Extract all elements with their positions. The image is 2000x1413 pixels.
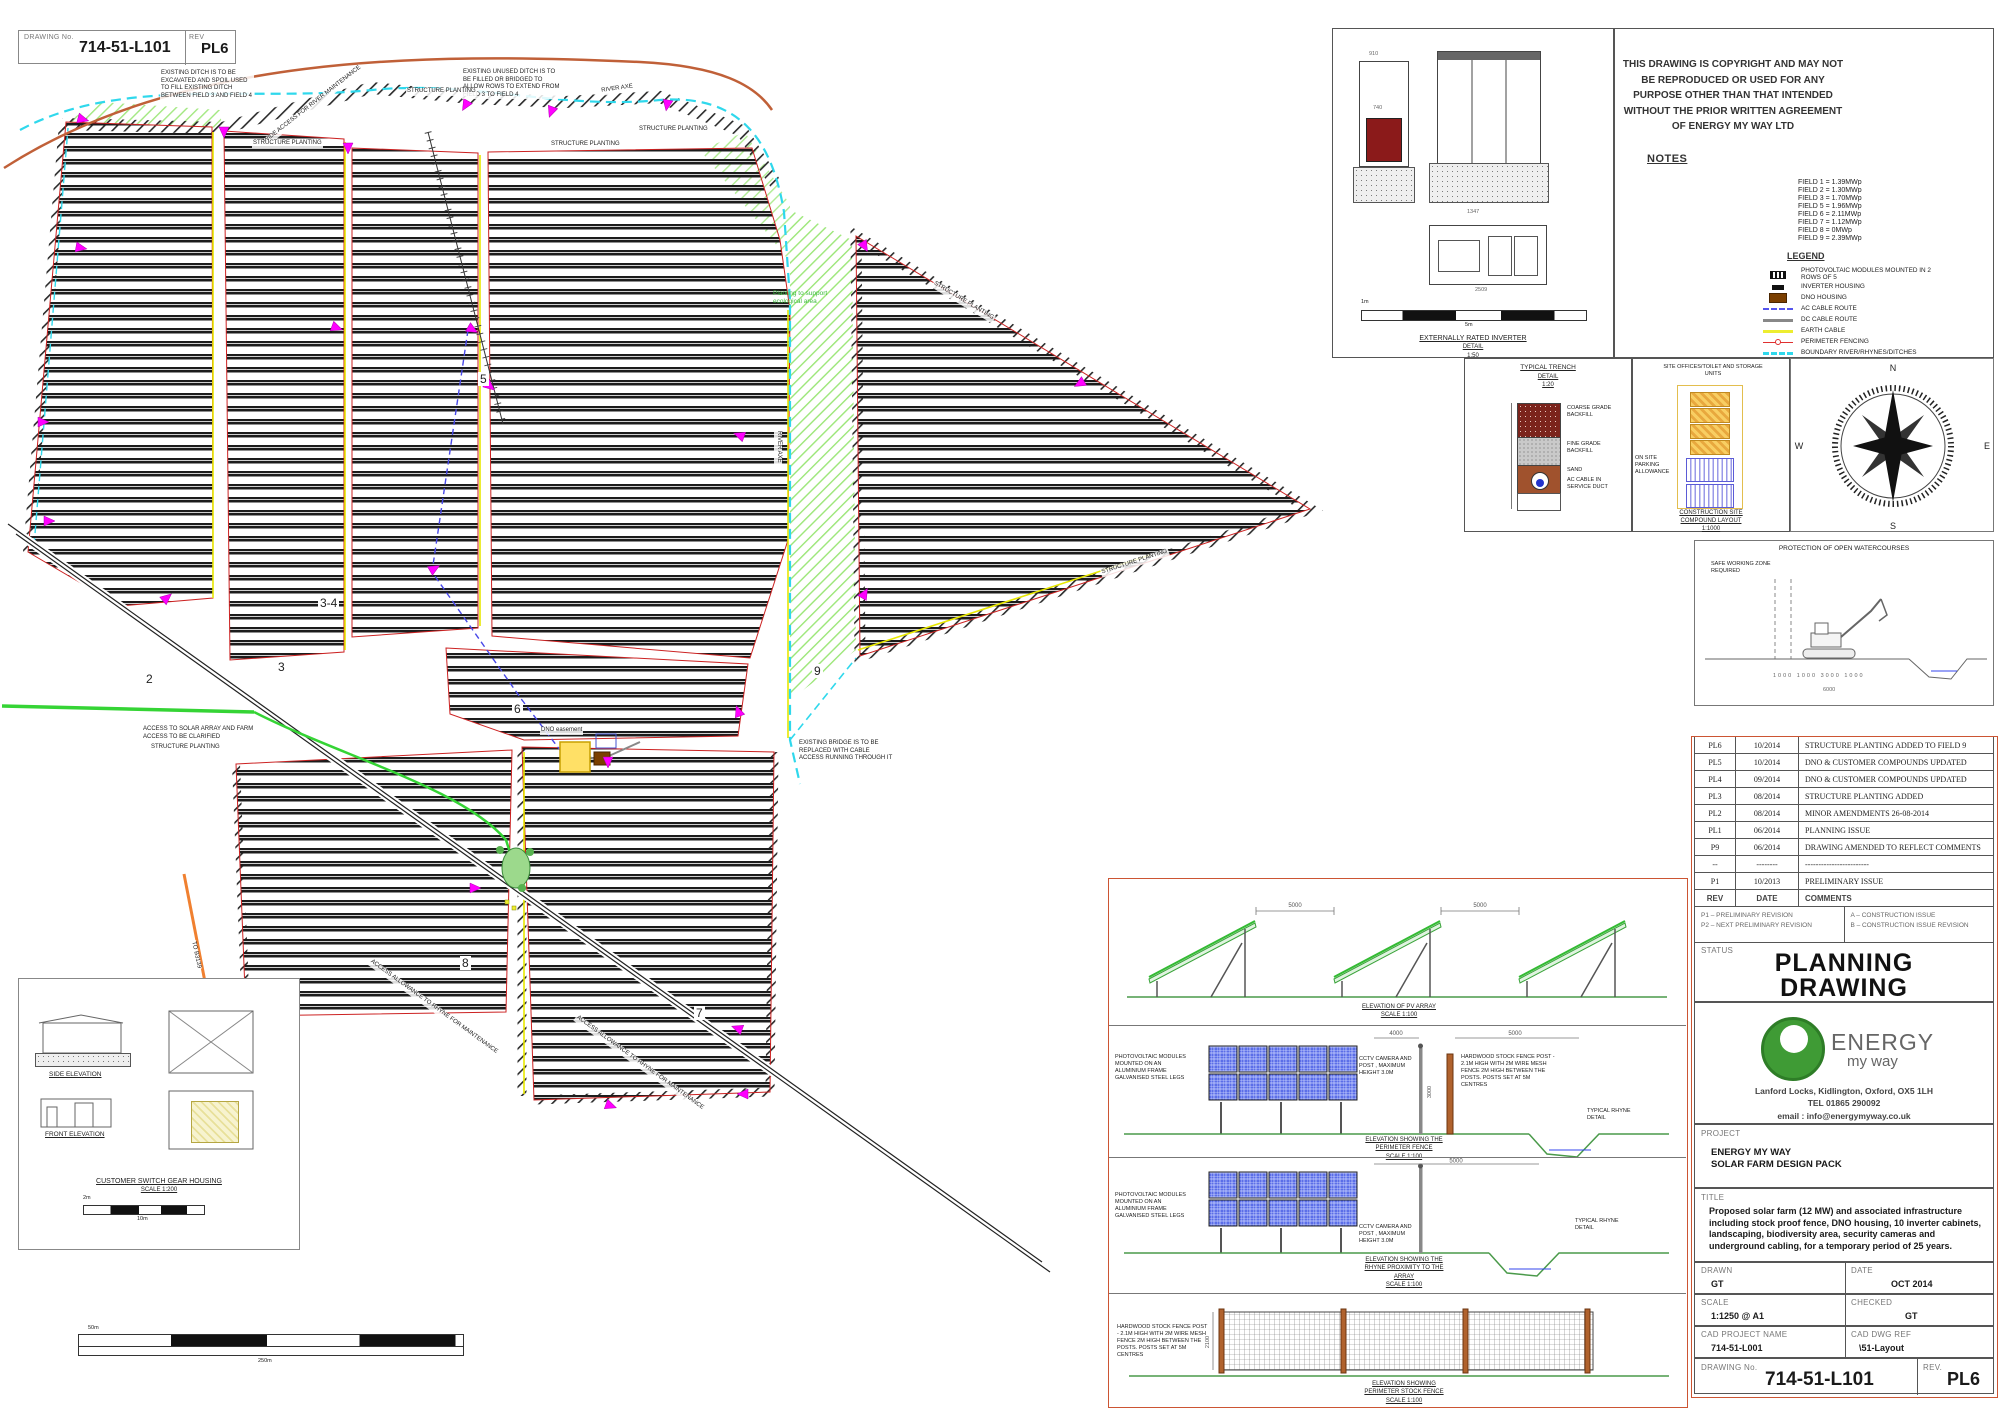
rev-key-p2: P2 – NEXT PRELIMINARY REVISION xyxy=(1701,921,1838,931)
annotation-structure-planting: STRUCTURE PLANTING xyxy=(406,88,477,96)
cad-project-value: 714-51-L001 xyxy=(1711,1343,1763,1353)
rev-key-a: A – CONSTRUCTION ISSUE xyxy=(1851,911,1988,921)
foundation-base xyxy=(35,1053,131,1067)
notes-panel: THIS DRAWING IS COPYRIGHT AND MAY NOT BE… xyxy=(1614,28,1994,358)
trench-detail-panel: TYPICAL TRENCH DETAIL 1:20 COARSE GRADE … xyxy=(1464,358,1632,532)
field-output: FIELD 9 = 2.39MWp xyxy=(1798,235,1862,243)
foundation-base xyxy=(1429,163,1549,203)
annotation-structure-planting: STRUCTURE PLANTING xyxy=(638,126,709,134)
field-number: 9 xyxy=(812,664,823,678)
scale-checked-row: SCALE 1:1250 @ A1 CHECKED GT xyxy=(1694,1294,1994,1326)
compound-boundary xyxy=(1677,385,1743,509)
field-output-list: FIELD 1 = 1.39MWpFIELD 2 = 1.30MWpFIELD … xyxy=(1798,179,1862,243)
brand-sub: my way xyxy=(1847,1053,1898,1070)
company-block: ENERGY my way Lanford Locks, Kidlington,… xyxy=(1694,1002,1994,1124)
excavator-detail xyxy=(1695,571,1995,681)
inverter-cabinet-elevation xyxy=(1437,51,1541,165)
annotation-access-clarified: ACCESS TO SOLAR ARRAY AND FARM ACCESS TO… xyxy=(142,726,256,741)
scale-label-250m: 250m xyxy=(258,1358,272,1365)
revision-key-row: P1 – PRELIMINARY REVISION P2 – NEXT PREL… xyxy=(1695,906,1993,943)
construction-compound-panel: SITE OFFICES/TOILET AND STORAGE UNITS ON… xyxy=(1632,358,1790,532)
scale-label-10m: 10m xyxy=(137,1216,148,1223)
cad-ref-value: \51-Layout xyxy=(1859,1343,1904,1353)
drawn-date-row: DRAWN GT DATE OCT 2014 xyxy=(1694,1262,1994,1294)
revision-row: PL308/2014STRUCTURE PLANTING ADDED xyxy=(1695,787,1993,804)
stock-fence-elevation: 2100 HARDWOOD STOCK FENCE POST - 2.1M HI… xyxy=(1109,1293,1686,1407)
rhyne-label: TYPICAL RHYNE DETAIL xyxy=(1587,1108,1637,1122)
ac-cable-icon xyxy=(1761,304,1795,314)
rev-value: PL6 xyxy=(1947,1369,1980,1390)
switchgear-scale-bar xyxy=(83,1205,205,1215)
stock-fence-post-label: HARDWOOD STOCK FENCE POST - 2.1M HIGH WI… xyxy=(1117,1324,1209,1358)
switchgear-panel: SIDE ELEVATION FRONT ELEVATION CUSTOMER … xyxy=(18,978,300,1250)
top-title-block: DRAWING No. 714-51-L101 REV PL6 xyxy=(18,30,236,64)
title-text: Proposed solar farm (12 MW) and associat… xyxy=(1709,1206,1985,1253)
company-contact: Lanford Locks, Kidlington, Oxford, OX5 1… xyxy=(1695,1085,1993,1122)
solar-field-6 xyxy=(446,648,748,740)
rev-label: REV. xyxy=(1923,1363,1942,1372)
dimension: 5000 xyxy=(1288,903,1302,909)
dimension: 1347 xyxy=(1467,209,1479,216)
date-label: DATE xyxy=(1851,1266,1873,1275)
field-number: 3-4 xyxy=(318,596,339,610)
notes-heading: NOTES xyxy=(1647,153,1687,165)
storage-unit xyxy=(1690,440,1730,455)
company-tel: TEL 01865 290092 xyxy=(1695,1097,1993,1109)
housing-plan-view xyxy=(1429,225,1547,285)
compass-north: N xyxy=(1890,363,1897,373)
inverter-housing-icon xyxy=(1761,282,1795,292)
dimension: 5000 xyxy=(1449,1159,1463,1165)
copyright-notice: THIS DRAWING IS COPYRIGHT AND MAY NOT BE… xyxy=(1617,57,1849,135)
cad-ref-label: CAD DWG REF xyxy=(1851,1330,1911,1339)
rev-key-p1: P1 – PRELIMINARY REVISION xyxy=(1701,911,1838,921)
scale-label-2m: 2m xyxy=(83,1195,91,1202)
ac-cable xyxy=(1536,479,1544,487)
annotation-ditch-filled: EXISTING UNUSED DITCH IS TO BE FILLED OR… xyxy=(462,69,564,99)
perimeter-fence-elevation: 4000 5000 3000 PHOTOVOLTAIC MODULES MOUN… xyxy=(1109,1025,1686,1158)
cctv-label: CCTV CAMERA AND POST , MAXIMUM HEIGHT 3.… xyxy=(1359,1056,1415,1077)
dimension: 4000 xyxy=(1389,1031,1403,1037)
drawn-value: GT xyxy=(1711,1279,1724,1289)
switchgear-caption: CUSTOMER SWITCH GEAR HOUSING SCALE 1:200 xyxy=(19,1177,299,1195)
stock-fence-caption: ELEVATION SHOWING PERIMETER STOCK FENCE … xyxy=(1339,1380,1469,1405)
compass-rose: N E S W xyxy=(1791,359,1995,533)
sand-label: SAND xyxy=(1567,467,1627,474)
cad-project-label: CAD PROJECT NAME xyxy=(1701,1330,1787,1339)
field-output: FIELD 3 = 1.70MWp xyxy=(1798,195,1862,203)
parking-label: ON SITE PARKING ALLOWANCE xyxy=(1635,455,1675,476)
dimension: 740 xyxy=(1373,105,1382,112)
planning-drawing-sheet: 2 3 3-4 5 6 7 8 9 EXISTING DITCH IS TO B… xyxy=(0,0,2000,1413)
service-duct xyxy=(1531,472,1549,490)
site-offices-label: SITE OFFICES/TOILET AND STORAGE UNITS xyxy=(1663,364,1763,378)
annotation-structure-planting: STRUCTURE PLANTING xyxy=(150,744,221,752)
legend-heading: LEGEND xyxy=(1787,251,1825,261)
compound-caption: CONSTRUCTION SITE COMPOUND LAYOUT 1:1000 xyxy=(1633,509,1789,533)
scale-label: SCALE xyxy=(1701,1298,1729,1307)
parking-area xyxy=(1686,458,1734,482)
fence-post-label: HARDWOOD STOCK FENCE POST - 2.1M HIGH WI… xyxy=(1461,1054,1557,1088)
dimension: 5000 xyxy=(1508,1031,1522,1037)
plan-room xyxy=(1514,236,1538,276)
legend-item-perimeter-fencing: PERIMETER FENCING xyxy=(1761,337,1991,347)
solar-field-3 xyxy=(224,131,344,660)
revision-table: PL610/2014STRUCTURE PLANTING ADDED TO FI… xyxy=(1694,736,1994,944)
scale-bar-lower xyxy=(78,1346,464,1356)
inverter-detail-panel: 910 740 1347 2509 1m 5m EXTERNALLY RATED… xyxy=(1332,28,1614,358)
logo-inner-circle xyxy=(1780,1025,1808,1053)
status-block: STATUS PLANNINGDRAWING xyxy=(1694,942,1994,1002)
front-elevation-caption: FRONT ELEVATION xyxy=(45,1131,105,1138)
annotation-river-axe: RIVER AXE xyxy=(775,430,783,464)
cabinet-top-bar xyxy=(1438,52,1540,60)
rev-value: PL6 xyxy=(201,40,229,57)
pv-modules-icon xyxy=(1761,270,1795,280)
modules-label: PHOTOVOLTAIC MODULES MOUNTED ON AN ALUMI… xyxy=(1115,1054,1189,1082)
legend-item-ac-cable: AC CABLE ROUTE xyxy=(1761,304,1991,314)
sand-layer xyxy=(1517,465,1561,495)
total-dimension: 6000 xyxy=(1823,687,1835,694)
revision-row: PL208/2014MINOR AMENDMENTS 26-08-2014 xyxy=(1695,804,1993,821)
project-label: PROJECT xyxy=(1701,1129,1740,1138)
watercourse-heading: PROTECTION OF OPEN WATERCOURSES xyxy=(1695,545,1993,554)
dimension: 5000 xyxy=(1473,903,1487,909)
drawing-no-value: 714-51-L101 xyxy=(79,39,171,57)
drawing-no-label: DRAWING No. xyxy=(24,34,74,41)
legend-item-pv-modules: PHOTOVOLTAIC MODULES MOUNTED IN 2 ROWS O… xyxy=(1761,268,1991,281)
compass-panel: N E S W xyxy=(1790,358,1994,532)
storage-unit xyxy=(1690,424,1730,439)
annotation-eco-area: Planting to support ecological area xyxy=(772,290,838,306)
divider xyxy=(1917,1359,1918,1395)
revision-row: ---------------------------------- xyxy=(1695,855,1993,872)
side-elevation-caption: SIDE ELEVATION xyxy=(49,1071,102,1078)
drawing-no-row: DRAWING No. 714-51-L101 REV. PL6 xyxy=(1694,1358,1994,1394)
field-number: 7 xyxy=(694,1006,705,1020)
annotation-structure-planting: STRUCTURE PLANTING xyxy=(550,141,621,149)
earth-cable-icon xyxy=(1761,326,1795,336)
scale-label-50m: 50m xyxy=(88,1325,99,1332)
title-block: TITLE Proposed solar farm (12 MW) and as… xyxy=(1694,1188,1994,1262)
checked-label: CHECKED xyxy=(1851,1298,1892,1307)
divider xyxy=(1845,1263,1846,1295)
rev-key-b: B – CONSTRUCTION ISSUE REVISION xyxy=(1851,921,1988,931)
field-output: FIELD 6 = 2.11MWp xyxy=(1798,211,1862,219)
revision-row: PL610/2014STRUCTURE PLANTING ADDED TO FI… xyxy=(1695,736,1993,753)
foundation-base xyxy=(1353,167,1415,203)
revision-row: PL510/2014DNO & CUSTOMER COMPOUNDS UPDAT… xyxy=(1695,753,1993,770)
dc-cable-icon xyxy=(1761,315,1795,325)
date-value: OCT 2014 xyxy=(1891,1279,1933,1289)
zone-dimensions: 1000 1000 3000 1000 xyxy=(1773,673,1865,680)
rhyne-proximity-elevation: 5000 PHOTOVOLTAIC MODULES MOUNTED ON AN … xyxy=(1109,1157,1686,1294)
annotation-ditch-excavated: EXISTING DITCH IS TO BE EXCAVATED AND SP… xyxy=(160,70,254,100)
project-line2: SOLAR FARM DESIGN PACK xyxy=(1711,1159,1842,1170)
pv-array-caption: ELEVATION OF PV ARRAY SCALE 1:100 xyxy=(1309,1003,1489,1020)
perimeter-fence-icon xyxy=(1761,337,1795,347)
dimension-line xyxy=(1511,403,1512,509)
field-output: FIELD 7 = 1.12MWp xyxy=(1798,219,1862,227)
inverter-detail-caption: EXTERNALLY RATED INVERTER DETAIL 1:50 xyxy=(1333,334,1613,360)
dno-housing-icon xyxy=(1761,293,1795,303)
field-output: FIELD 2 = 1.30MWp xyxy=(1798,187,1862,195)
plan-room xyxy=(1488,236,1512,276)
trench-bottom xyxy=(1517,493,1561,511)
field-number: 6 xyxy=(512,702,523,716)
scale-label-1m: 1m xyxy=(1361,299,1369,306)
coarse-backfill-label: COARSE GRADE BACKFILL xyxy=(1567,405,1627,419)
rhyne-label: TYPICAL RHYNE DETAIL xyxy=(1575,1218,1625,1232)
fine-backfill-layer xyxy=(1517,437,1561,467)
elevation-details-block: 5000 5000 ELEVATION OF PV ARRAY SCALE 1:… xyxy=(1108,878,1688,1408)
legend-item-dc-cable: DC CABLE ROUTE xyxy=(1761,315,1991,325)
storage-unit xyxy=(1690,392,1730,407)
drawing-no-value: 714-51-L101 xyxy=(1765,1369,1874,1391)
legend-item-earth-cable: EARTH CABLE xyxy=(1761,326,1991,336)
watercourse-protection-panel: PROTECTION OF OPEN WATERCOURSES SAFE WOR… xyxy=(1694,540,1994,706)
scale-label-5m: 5m xyxy=(1465,322,1473,329)
revision-row: PL409/2014DNO & CUSTOMER COMPOUNDS UPDAT… xyxy=(1695,770,1993,787)
legend-item-boundary: BOUNDARY RIVER/RHYNES/DITCHES xyxy=(1761,348,1991,358)
solar-field-9 xyxy=(856,236,1310,656)
compass-east: E xyxy=(1984,441,1990,451)
drawing-no-label: DRAWING No. xyxy=(1701,1363,1757,1372)
pv-array-elevation: 5000 5000 ELEVATION OF PV ARRAY SCALE 1:… xyxy=(1109,879,1686,1025)
drawn-label: DRAWN xyxy=(1701,1266,1732,1275)
dno-door xyxy=(1366,118,1402,162)
brand-name: ENERGY xyxy=(1831,1029,1934,1056)
revision-row: P110/2013PRELIMINARY ISSUE xyxy=(1695,872,1993,889)
solar-field-5 xyxy=(488,148,790,658)
compass-west: W xyxy=(1795,441,1804,451)
status-value: PLANNINGDRAWING xyxy=(1695,951,1993,1001)
boundary-icon xyxy=(1761,348,1795,358)
field-number: 3 xyxy=(276,660,287,674)
plan-equipment-area xyxy=(191,1101,239,1143)
checked-value: GT xyxy=(1905,1311,1918,1321)
storage-unit xyxy=(1690,408,1730,423)
title-label: TITLE xyxy=(1701,1193,1724,1202)
revision-row: PL106/2014PLANNING ISSUE xyxy=(1695,821,1993,838)
plan-room xyxy=(1438,240,1480,272)
annotation-bridge: EXISTING BRIDGE IS TO BE REPLACED WITH C… xyxy=(798,740,896,763)
detail-scale-bar xyxy=(1361,310,1587,321)
fine-backfill-label: FINE GRADE BACKFILL xyxy=(1567,441,1627,455)
parking-area xyxy=(1686,484,1734,508)
revision-header-row: REVDATECOMMENTS xyxy=(1695,889,1993,906)
field-output: FIELD 8 = 0MWp xyxy=(1798,227,1862,235)
coarse-backfill-layer xyxy=(1517,403,1561,439)
compass-south: S xyxy=(1890,521,1896,531)
legend-item-inverter-housing: INVERTER HOUSING xyxy=(1761,282,1991,292)
field-output: FIELD 5 = 1.96MWp xyxy=(1798,203,1862,211)
trench-detail-title: TYPICAL TRENCH DETAIL 1:20 xyxy=(1465,364,1631,389)
field-number: 8 xyxy=(460,956,471,970)
modules-label: PHOTOVOLTAIC MODULES MOUNTED ON AN ALUMI… xyxy=(1115,1192,1189,1220)
cad-row: CAD PROJECT NAME 714-51-L001 CAD DWG REF… xyxy=(1694,1326,1994,1358)
dno-housing-elevation xyxy=(1359,61,1409,167)
project-line1: ENERGY MY WAY xyxy=(1711,1147,1791,1158)
scale-value: 1:1250 @ A1 xyxy=(1711,1311,1764,1321)
divider xyxy=(1845,1327,1846,1359)
field-output: FIELD 1 = 1.39MWp xyxy=(1798,179,1862,187)
annotation-structure-planting: STRUCTURE PLANTING xyxy=(252,140,323,148)
bee-hive-marker xyxy=(505,900,509,904)
dimension: 910 xyxy=(1369,51,1378,58)
rhyne-proximity-caption: ELEVATION SHOWING THE RHYNE PROXIMITY TO… xyxy=(1344,1256,1464,1290)
dimension: 2509 xyxy=(1475,287,1487,294)
ac-cable-duct-label: AC CABLE IN SERVICE DUCT xyxy=(1567,477,1617,491)
divider xyxy=(1845,1295,1846,1327)
bee-hive-marker xyxy=(512,906,516,910)
project-block: PROJECT ENERGY MY WAY SOLAR FARM DESIGN … xyxy=(1694,1124,1994,1188)
company-address: Lanford Locks, Kidlington, Oxford, OX5 1… xyxy=(1695,1085,1993,1097)
divider xyxy=(185,31,186,65)
annotation-dno-easement: DNO easement xyxy=(540,727,583,735)
revision-row: P906/2014DRAWING AMENDED TO REFLECT COMM… xyxy=(1695,838,1993,855)
field-number: 2 xyxy=(144,672,155,686)
energy-my-way-logo xyxy=(1761,1017,1825,1081)
dimension: 3000 xyxy=(1427,1086,1433,1098)
legend-item-dno-housing: DNO HOUSING xyxy=(1761,293,1991,303)
cctv-label: CCTV CAMERA AND POST , MAXIMUM HEIGHT 3.… xyxy=(1359,1224,1415,1245)
company-email: email : info@energymyway.co.uk xyxy=(1695,1110,1993,1122)
field-number: 5 xyxy=(478,372,489,386)
